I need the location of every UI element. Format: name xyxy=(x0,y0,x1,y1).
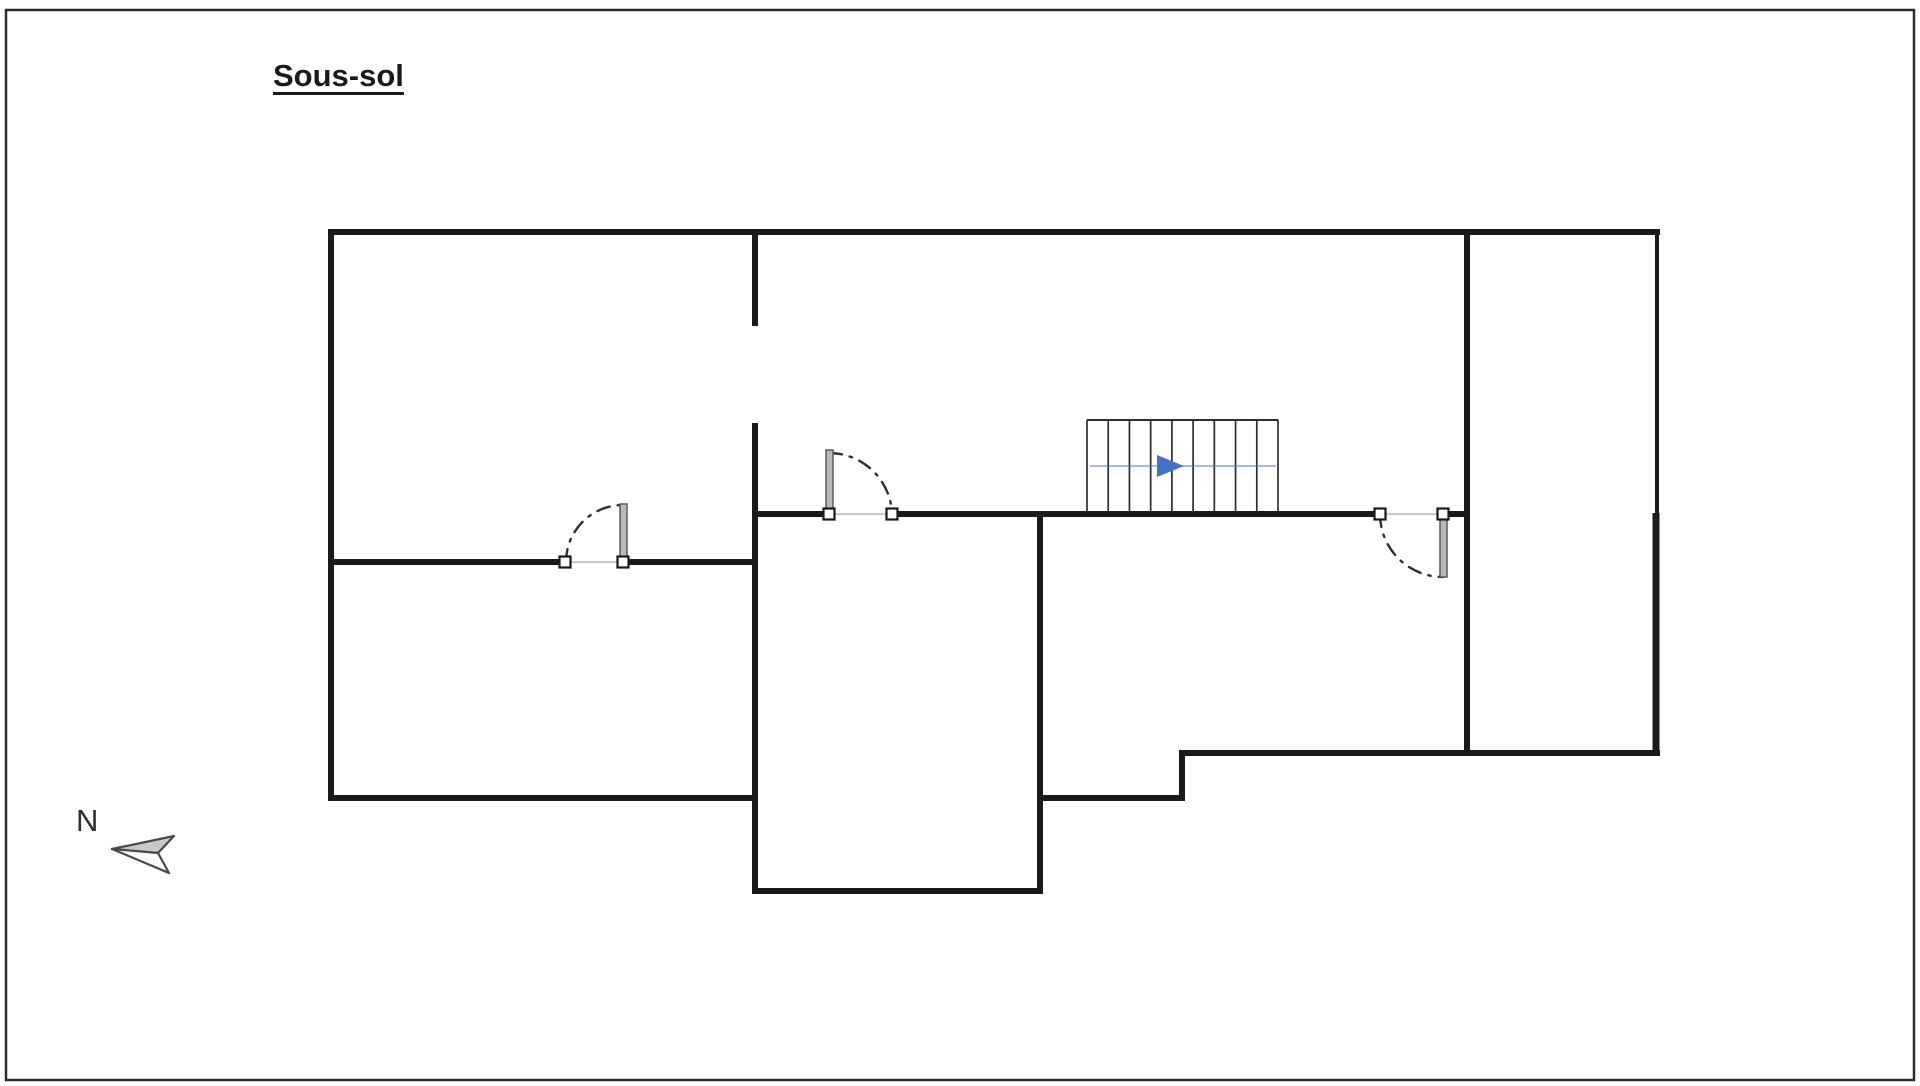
floor-plan-drawing xyxy=(0,0,1920,1086)
north-arrow-icon xyxy=(112,849,169,873)
door-leaf xyxy=(1440,519,1447,577)
door-swing-arc xyxy=(566,505,623,562)
door-leaf xyxy=(620,504,627,557)
door-jamb xyxy=(618,557,629,568)
door-jamb xyxy=(887,509,898,520)
page-border xyxy=(6,10,1914,1080)
door-swing-arc xyxy=(1380,514,1443,577)
door-jamb xyxy=(560,557,571,568)
floor-plan-canvas: Sous-sol N xyxy=(0,0,1920,1086)
plan-title: Sous-sol xyxy=(273,58,404,94)
door-jamb xyxy=(824,509,835,520)
door-leaf xyxy=(826,450,833,509)
door-jamb xyxy=(1375,509,1386,520)
north-label: N xyxy=(76,803,98,839)
door-jamb xyxy=(1438,509,1449,520)
door-swing-arc xyxy=(829,453,892,514)
stair-direction-arrow xyxy=(1157,455,1184,477)
